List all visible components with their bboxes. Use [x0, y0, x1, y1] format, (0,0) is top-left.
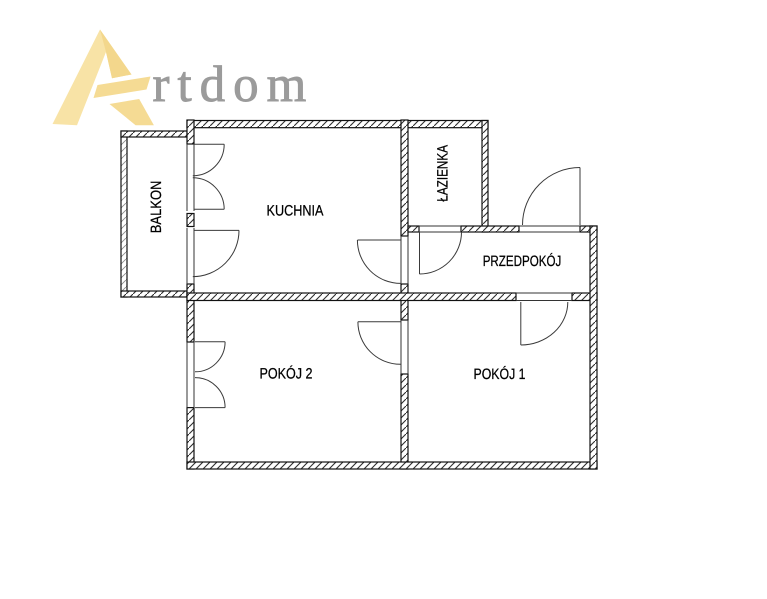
- svg-text:KUCHNIA: KUCHNIA: [267, 203, 324, 220]
- svg-text:PRZEDPOKÓJ: PRZEDPOKÓJ: [483, 252, 562, 270]
- svg-text:rtdom: rtdom: [153, 57, 315, 113]
- svg-text:POKÓJ 2: POKÓJ 2: [260, 365, 313, 383]
- svg-text:ŁAZIENKA: ŁAZIENKA: [435, 145, 452, 202]
- svg-text:POKÓJ 1: POKÓJ 1: [474, 365, 526, 383]
- svg-text:BALKON: BALKON: [148, 181, 165, 234]
